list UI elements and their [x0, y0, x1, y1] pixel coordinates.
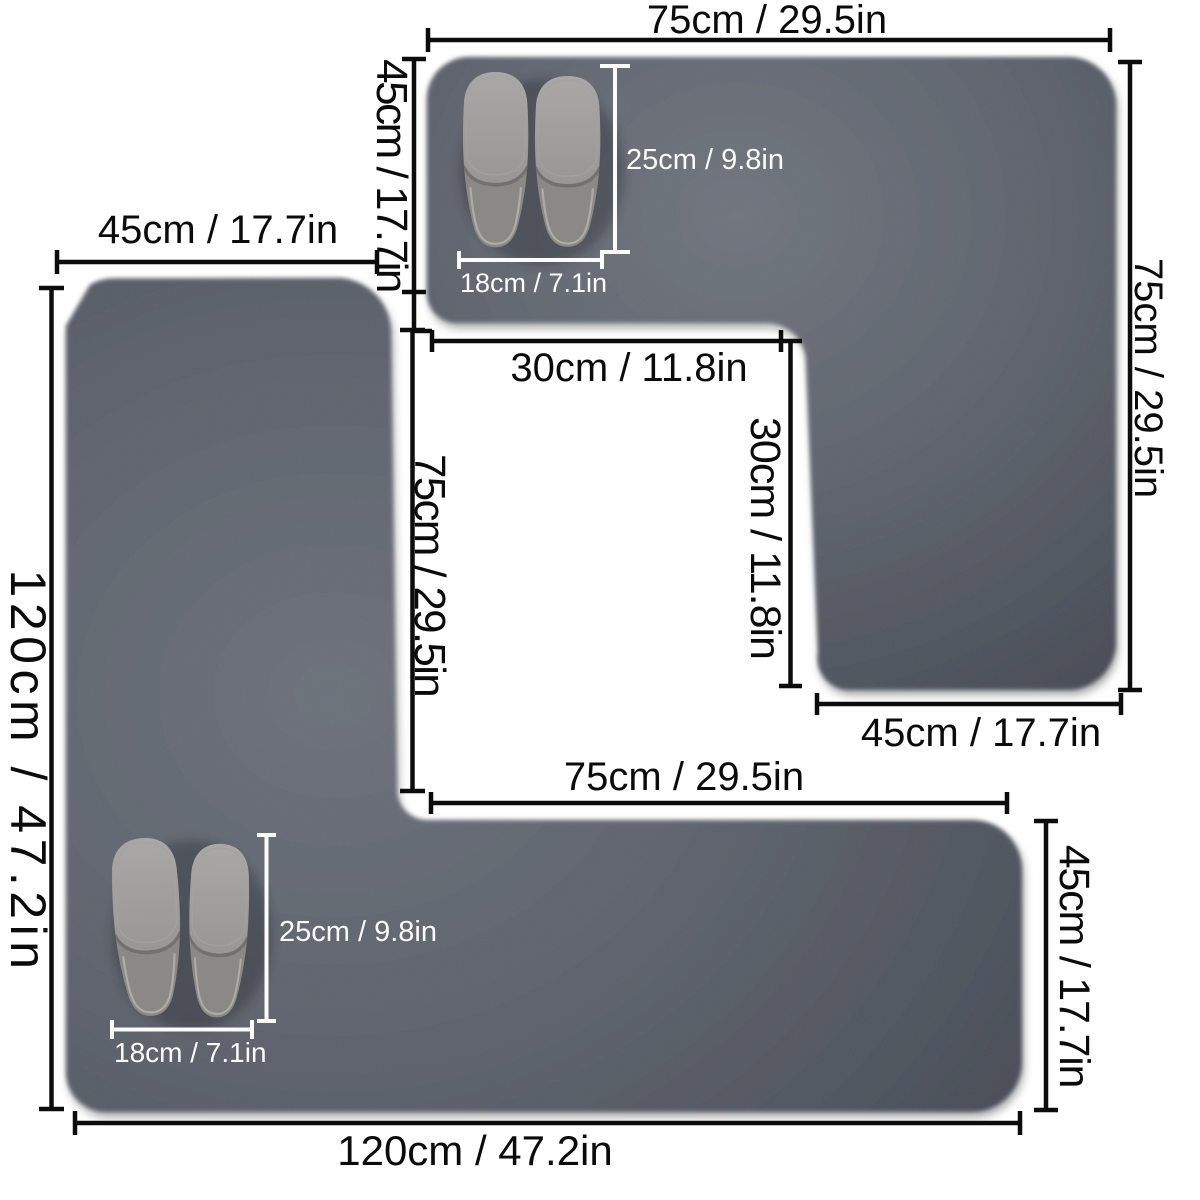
- svg-text:45cm / 17.7in: 45cm / 17.7in: [1050, 845, 1098, 1088]
- svg-text:120cm / 47.2in: 120cm / 47.2in: [337, 1127, 613, 1174]
- svg-text:30cm / 11.8in: 30cm / 11.8in: [741, 417, 789, 659]
- svg-text:75cm / 29.5in: 75cm / 29.5in: [1126, 258, 1170, 498]
- svg-text:45cm / 17.7in: 45cm / 17.7in: [861, 711, 1101, 755]
- svg-text:75cm / 29.5in: 75cm / 29.5in: [647, 0, 887, 42]
- svg-text:18cm / 7.1in: 18cm / 7.1in: [114, 1037, 267, 1068]
- svg-text:18cm / 7.1in: 18cm / 7.1in: [460, 268, 607, 298]
- svg-text:25cm / 9.8in: 25cm / 9.8in: [626, 144, 784, 176]
- svg-text:75cm / 29.5in: 75cm / 29.5in: [405, 454, 454, 696]
- svg-text:25cm / 9.8in: 25cm / 9.8in: [279, 916, 437, 948]
- svg-text:75cm / 29.5in: 75cm / 29.5in: [564, 755, 804, 799]
- svg-text:45cm / 17.7in: 45cm / 17.7in: [367, 59, 416, 291]
- svg-text:45cm / 17.7in: 45cm / 17.7in: [98, 208, 338, 252]
- svg-text:120cm / 47.2in: 120cm / 47.2in: [0, 570, 56, 975]
- svg-text:30cm / 11.8in: 30cm / 11.8in: [510, 346, 747, 390]
